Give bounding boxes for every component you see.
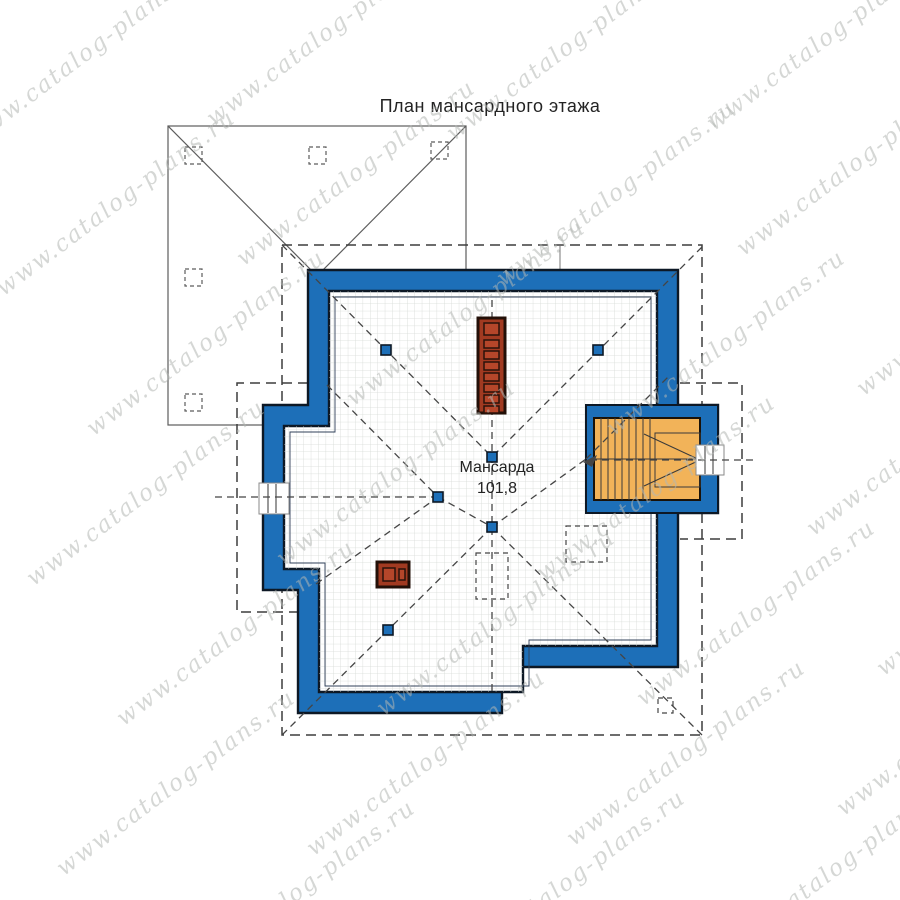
watermark-text: www.catalog-plans.ru (0, 0, 211, 151)
watermark-text: www.catalog-plans.ru (442, 785, 691, 900)
watermark-text: www.catalog-plans.ru (492, 95, 741, 292)
watermark-text: www.catalog-plans.ru (442, 0, 691, 146)
watermark-text: www.catalog-plans.ru (712, 770, 900, 900)
watermark-text: www.catalog-plans.ru (22, 395, 271, 592)
watermark-text: www.catalog-plans.ru (852, 205, 900, 402)
watermark-text: www.catalog-plans.ru (82, 245, 331, 442)
watermark-text: www.catalog-plans.ru (202, 0, 451, 131)
watermark-layer: www.catalog-plans.ruwww.catalog-plans.ru… (0, 0, 900, 900)
watermark-text: www.catalog-plans.ru (232, 75, 481, 272)
watermark-text: www.catalog-plans.ru (372, 525, 621, 722)
watermark-text: www.catalog-plans.ru (832, 625, 900, 822)
watermark-text: www.catalog-plans.ru (532, 390, 781, 587)
watermark-text: www.catalog-plans.ru (302, 665, 551, 862)
watermark-text: www.catalog-plans.ru (342, 215, 591, 412)
watermark-text: www.catalog-plans.ru (0, 105, 241, 302)
watermark-text: www.catalog-plans.ru (702, 0, 900, 136)
watermark-text: www.catalog-plans.ru (632, 515, 881, 712)
watermark-text: www.catalog-plans.ru (272, 375, 521, 572)
watermark-text: www.catalog-plans.ru (172, 795, 421, 900)
watermark-text: www.catalog-plans.ru (732, 65, 900, 262)
watermark-text: www.catalog-plans.ru (602, 245, 851, 442)
watermark-text: www.catalog-plans.ru (52, 685, 301, 882)
watermark-text: www.catalog-plans.ru (112, 535, 361, 732)
watermark-text: www.catalog-plans.ru (802, 345, 900, 542)
watermark-text: www.catalog-plans.ru (562, 655, 811, 852)
watermark-text: www.catalog-plans.ru (872, 485, 900, 682)
